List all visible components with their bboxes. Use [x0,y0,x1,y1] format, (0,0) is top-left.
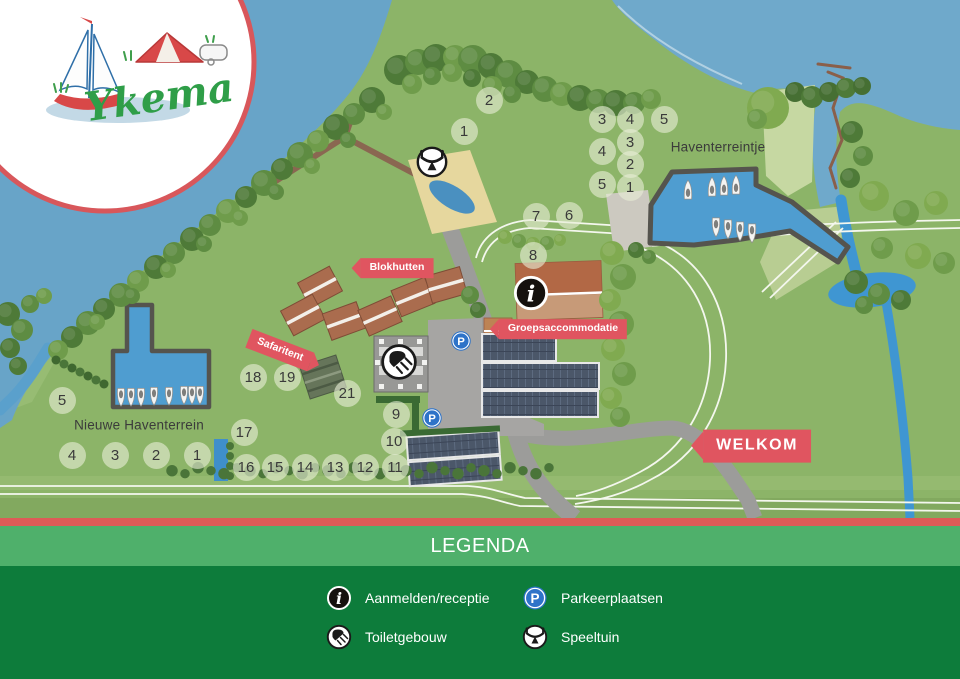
legend-panel: iAanmelden/receptiePParkeerplaatsenToile… [0,566,960,679]
sign-welkom: WELKOM [703,430,811,463]
pitch-marker-16: 16 [233,454,260,481]
svg-text:i: i [336,589,342,608]
pitch-marker-10: 10 [381,428,408,455]
pitch-marker-5: 5 [49,387,76,414]
pitch-marker-4: 4 [589,138,616,165]
pitch-marker-18: 18 [240,364,267,391]
pitch-marker-13: 13 [322,454,349,481]
legend-label: Speeltuin [561,629,619,645]
svg-text:i: i [527,282,536,308]
pitch-marker-12: 12 [352,454,379,481]
legend-items: iAanmelden/receptiePParkeerplaatsenToile… [326,585,663,650]
svg-text:P: P [428,413,436,425]
toilet-icon [326,624,352,650]
legend-item-toilet: Toiletgebouw [326,624,522,650]
pitch-marker-5: 5 [589,171,616,198]
pitch-marker-14: 14 [292,454,319,481]
pitch-marker-15: 15 [262,454,289,481]
sign-text: WELKOM [716,437,798,454]
pitch-marker-21: 21 [334,380,361,407]
sign-text: Groepsaccommodatie [508,322,618,334]
red-divider [0,518,960,526]
pitch-marker-19: 19 [274,364,301,391]
pitch-marker-6: 6 [556,202,583,229]
area-label-haventerreintje: Haventerreintje [671,140,766,155]
pitch-marker-5: 5 [651,106,678,133]
pitch-marker-1: 1 [617,174,644,201]
sign-arrow [490,319,499,339]
area-label-nieuwe-haventerrein: Nieuwe Haventerrein [74,418,204,433]
legend-item-receptie: iAanmelden/receptie [326,585,522,611]
legend-label: Aanmelden/receptie [365,590,490,606]
legend-label: Parkeerplaatsen [561,590,663,606]
svg-text:P: P [457,336,465,348]
pitch-marker-1: 1 [451,118,478,145]
parking-icon: P [450,330,472,352]
sign-arrow [691,432,703,460]
receptie-icon: i [326,585,352,611]
legend-label: Toiletgebouw [365,629,447,645]
pitch-marker-8: 8 [520,242,547,269]
speeltuin-icon [416,146,449,179]
sign-text: Blokhutten [370,261,425,273]
pitch-marker-9: 9 [383,401,410,428]
receptie-icon: i [513,275,550,312]
pitch-marker-3: 3 [589,106,616,133]
pitch-marker-2: 2 [476,87,503,114]
svg-text:P: P [530,591,539,606]
parking-icon: P [522,585,548,611]
sign-blokhutten: Blokhutten [361,258,434,278]
legend-item-parking: PParkeerplaatsen [522,585,663,611]
parking-icon: P [421,407,443,429]
legend-header: LEGENDA [0,526,960,566]
legend-title: LEGENDA [430,535,529,558]
sign-groepsaccommodatie: Groepsaccommodatie [499,319,627,339]
toilet-icon [380,343,418,381]
sign-arrow [352,258,361,278]
pitch-marker-17: 17 [231,419,258,446]
speeltuin-icon [522,624,548,650]
pitch-marker-4: 4 [59,442,86,469]
pitch-marker-2: 2 [143,442,170,469]
pitch-marker-1: 1 [184,442,211,469]
campground-map: Ykema 2134543251768181921179101112131415… [0,0,960,679]
pitch-marker-7: 7 [523,203,550,230]
legend-item-speeltuin: Speeltuin [522,624,663,650]
pitch-marker-11: 11 [382,454,409,481]
pitch-marker-3: 3 [102,442,129,469]
